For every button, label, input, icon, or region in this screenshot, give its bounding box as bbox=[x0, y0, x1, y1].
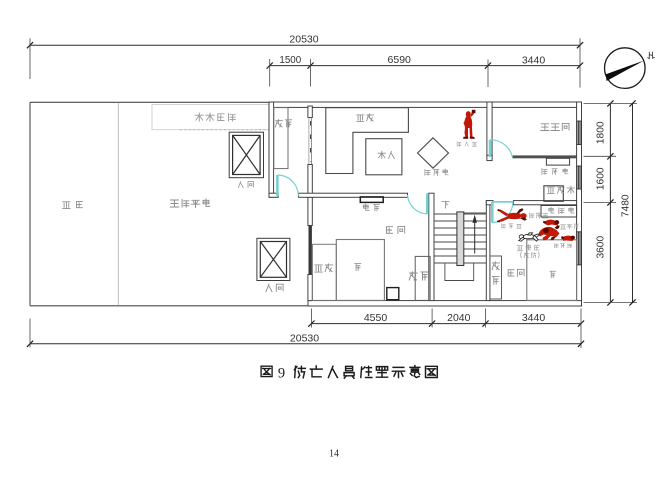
svg-text:6590: 6590 bbox=[388, 54, 412, 66]
svg-text:1800: 1800 bbox=[596, 121, 607, 144]
svg-text:14: 14 bbox=[329, 449, 339, 460]
svg-text:20530: 20530 bbox=[289, 34, 318, 46]
svg-text:1500: 1500 bbox=[279, 55, 301, 66]
svg-text:1600: 1600 bbox=[596, 167, 607, 190]
svg-text:7480: 7480 bbox=[621, 194, 632, 217]
svg-text:4550: 4550 bbox=[364, 312, 388, 324]
svg-text:2040: 2040 bbox=[447, 312, 471, 324]
svg-text:3600: 3600 bbox=[596, 236, 607, 259]
svg-text:3440: 3440 bbox=[522, 55, 546, 67]
svg-text:3440: 3440 bbox=[522, 312, 546, 324]
svg-text:20530: 20530 bbox=[290, 332, 319, 344]
svg-text:9: 9 bbox=[278, 366, 285, 382]
